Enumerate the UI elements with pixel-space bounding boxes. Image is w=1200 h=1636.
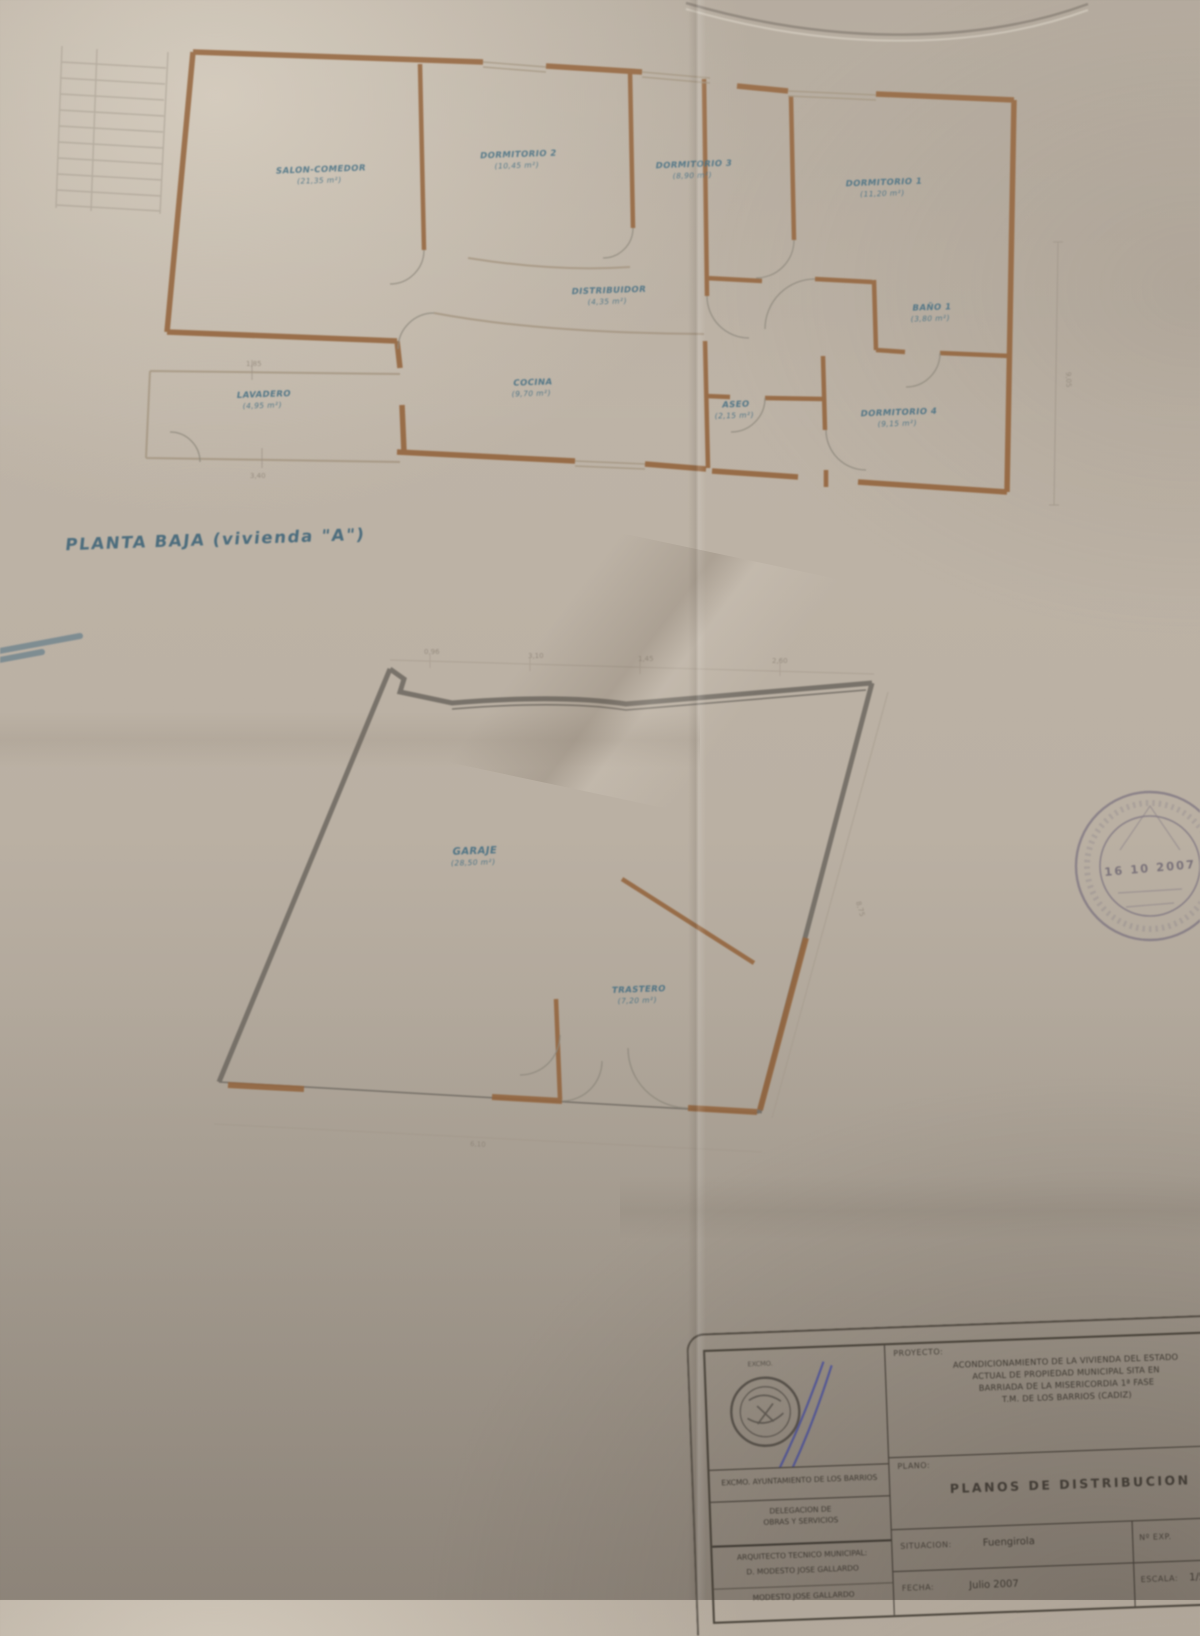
room-name: SALON-COMEDOR [275, 163, 366, 176]
lower-plan-walls-brown [228, 879, 806, 1112]
dim-text: 8,75 [854, 900, 866, 917]
room-label-dormitorio3: DORMITORIO 3 (8,90 m²) [646, 158, 739, 182]
staircase-sketch [56, 46, 168, 214]
plano-title: PLANOS DE DISTRIBUCION [898, 1470, 1200, 1498]
title-block: EXCMO. EXCMO. AYUNTAMIENTO DE LOS BARRIO… [703, 1330, 1200, 1624]
room-label-aseo: ASEO (2,15 m²) [700, 399, 769, 422]
door-arc [765, 279, 815, 329]
architect-cell: ARQUITECTO TECNICO MUNICIPAL: D. MODESTO… [712, 1539, 894, 1622]
proyecto-cell: PROYECTO: ACONDICIONAMIENTO DE LA VIVIEN… [885, 1332, 1200, 1457]
dim-line [214, 655, 888, 1152]
dim-text: 1,45 [638, 655, 654, 663]
room-label-trastero: TRASTERO (7,20 m²) [590, 983, 685, 1007]
delegation-cell: DELEGACION DE OBRAS Y SERVICIOS [711, 1495, 891, 1546]
room-name: TRASTERO [611, 984, 666, 996]
fecha-cell: FECHA: Julio 2007 [893, 1563, 1134, 1615]
room-label-cocina: COCINA (9,70 m²) [490, 377, 573, 401]
room-name: COCINA [512, 377, 553, 388]
room-name: ASEO [721, 400, 750, 411]
sheet-content: 9,05 1,85 3,40 0,96 3,10 1,45 2,60 8,75 … [0, 0, 1200, 1600]
door-arc [906, 353, 940, 387]
logo-cell: EXCMO. [705, 1345, 888, 1469]
stamp-date: 16 10 2007 [1104, 857, 1197, 879]
door-arc [562, 1061, 602, 1101]
situacion-label: SITUACION: [900, 1540, 952, 1551]
dim-text: 3,10 [528, 652, 544, 660]
window-lines [483, 62, 876, 469]
lower-dimension-lines [214, 655, 888, 1152]
logo-emblem-marks [747, 1395, 784, 1425]
door-arc [628, 1048, 688, 1108]
lower-brown-segments [228, 938, 806, 1112]
dim-text: 1,85 [246, 360, 262, 368]
logo-caption: EXCMO. [747, 1359, 772, 1368]
room-label-dormitorio4: DORMITORIO 4 (9,15 m²) [848, 406, 947, 430]
door-arc [756, 240, 794, 278]
room-label-dormitorio2: DORMITORIO 2 (10,45 m²) [468, 148, 566, 172]
escala-label: ESCALA: [1141, 1574, 1179, 1584]
edge-text-fragment [0, 636, 80, 661]
annex-walls [146, 371, 400, 462]
room-name: DORMITORIO 1 [845, 177, 923, 190]
door-arc [603, 228, 633, 258]
date-stamp: 16 10 2007 [1076, 792, 1200, 940]
room-name: LAVADERO [236, 389, 292, 401]
org-name: EXCMO. AYUNTAMIENTO DE LOS BARRIOS [721, 1473, 877, 1488]
proyecto-description: ACONDICIONAMIENTO DE LA VIVIENDA DEL EST… [894, 1348, 1200, 1409]
architect-name: D. MODESTO JOSE GALLARDO [713, 1562, 892, 1579]
room-name: DISTRIBUIDOR [571, 285, 647, 298]
dim-text: 9,05 [1064, 372, 1073, 388]
paper-curl-line [686, 3, 1088, 35]
room-label-dormitorio1: DORMITORIO 1 (11,20 m²) [831, 176, 934, 200]
room-name: DORMITORIO 3 [655, 159, 733, 172]
dim-text: 3,40 [250, 472, 266, 480]
expediente-cell: Nº EXP. [1132, 1517, 1200, 1562]
room-label-garaje: GARAJE (28,50 m²) [416, 843, 532, 870]
door-arc [398, 313, 434, 349]
municipal-logo: EXCMO. [705, 1345, 889, 1470]
door-arc [520, 1035, 560, 1075]
dim-text: 6,10 [470, 1140, 486, 1149]
room-name: DORMITORIO 2 [479, 149, 557, 162]
staircase-lines [56, 46, 168, 214]
door-arc [826, 430, 866, 470]
room-label-banio1: BAÑO 1 (3,80 m²) [896, 302, 965, 325]
door-arcs [170, 228, 940, 470]
expediente-label: Nº EXP. [1139, 1532, 1172, 1542]
title-block-right-column: PROYECTO: ACONDICIONAMIENTO DE LA VIVIEN… [885, 1332, 1200, 1615]
fecha-label: FECHA: [902, 1583, 935, 1593]
room-label-distribuidor: DISTRIBUIDOR (4,35 m²) [556, 284, 659, 308]
logo-inner-circle [739, 1386, 791, 1438]
plano-cell: PLANO: PLANOS DE DISTRIBUCION [889, 1444, 1200, 1529]
dim-text: 2,60 [772, 657, 788, 665]
fecha-value: Julio 2007 [969, 1579, 1019, 1592]
situacion-value: Fuengirola [983, 1536, 1035, 1549]
room-label-lavadero: LAVADERO (4,95 m²) [218, 389, 307, 413]
door-arc [707, 296, 749, 338]
architect-name-2: MODESTO JOSE GALLARDO [714, 1582, 893, 1605]
lower-top-inner-line [219, 690, 866, 1113]
door-arc [390, 250, 424, 284]
room-name: DORMITORIO 4 [860, 407, 938, 420]
escala-value: 1/50 [1189, 1572, 1200, 1584]
dim-text: 0,96 [424, 648, 440, 656]
title-block-left-column: EXCMO. EXCMO. AYUNTAMIENTO DE LOS BARRIO… [705, 1345, 895, 1621]
escala-cell: ESCALA: 1/50 [1133, 1559, 1200, 1606]
photo-of-floor-plan-sheet: { "plan_sheet": { "main_title": "PLANTA … [0, 0, 1200, 1600]
room-name: BAÑO 1 [912, 302, 952, 313]
room-name: GARAJE [452, 845, 498, 858]
paper-curl-highlight [686, 9, 1088, 41]
